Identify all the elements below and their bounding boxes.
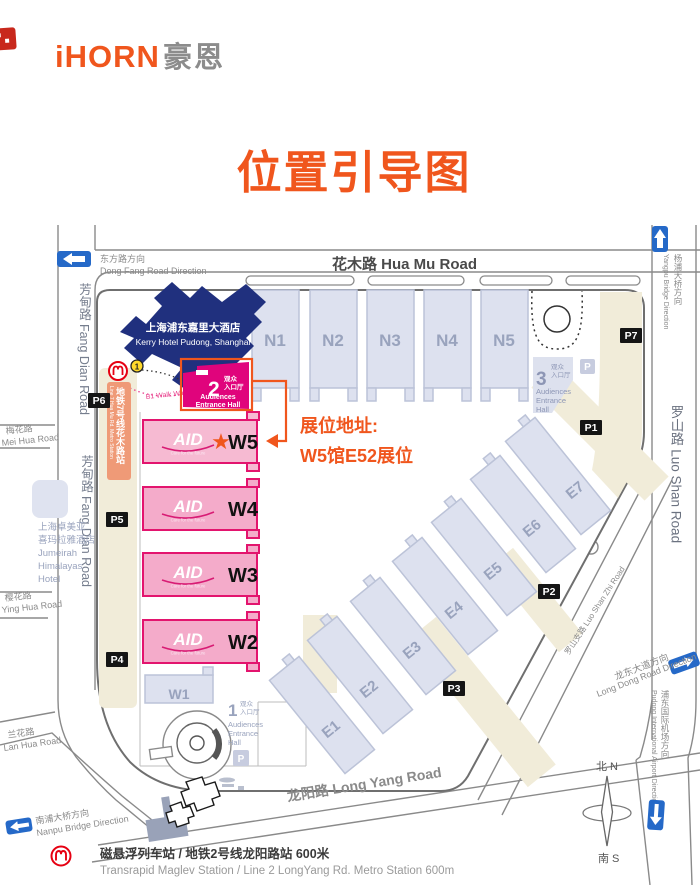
- parking-badge-p2: P2: [543, 586, 556, 598]
- dongfang-en: Dong Fang Road Direction: [100, 266, 207, 276]
- hall-label-w3: W3: [228, 565, 258, 587]
- compass-north-label: 北 N: [596, 760, 618, 773]
- entrance3-parking-p: P: [584, 362, 591, 373]
- jumeirah-line4: Himalayas: [38, 561, 83, 572]
- metro-line7-label-zh: 地铁7号线花木路站: [115, 386, 126, 465]
- brand-logo-en: iHORN: [55, 39, 160, 74]
- footer-station-zh: 磁悬浮列车站 / 地铁2号线龙阳路站 600米: [99, 846, 330, 861]
- direction-yangpu: 杨浦大桥方向 Yangpu Bridge Direction: [652, 226, 683, 329]
- airport-zh: 浦东国际机场方向: [660, 689, 670, 758]
- entrance2-zh2: 入口厅: [223, 383, 244, 391]
- road-label-meihua: 梅花路 Mei Hua Road: [1, 422, 59, 448]
- parking-badge-p6: P6: [93, 395, 106, 407]
- halls-north: N1 N2 N3 N4 N5: [252, 290, 528, 401]
- entrance3-en3: Hall: [536, 405, 549, 414]
- entrance1-number: 1: [228, 701, 237, 720]
- entrance3-en1: Audiences: [536, 387, 571, 396]
- venue-map: iHORN 豪恩 位置引导图: [0, 0, 700, 885]
- compass-needle: [602, 776, 613, 846]
- booth-address-value: W5馆E52展位: [300, 445, 413, 466]
- yangpu-en: Yangpu Bridge Direction: [662, 254, 669, 329]
- hall-label-n3: N3: [379, 331, 401, 350]
- entrance2-en2: Entrance Hall: [196, 402, 241, 409]
- entrance2-en1: Audiences: [200, 394, 236, 401]
- jumeirah-building: [32, 480, 68, 518]
- hall-label-n4: N4: [436, 331, 458, 350]
- yinghua-zh: 樱花路: [4, 589, 32, 603]
- hall-label-w2: W2: [228, 632, 258, 654]
- entrance3-zh2: 入口厅: [551, 371, 571, 379]
- entrance1-parking-p: P: [238, 754, 245, 765]
- hall-label-w4: W4: [228, 499, 259, 521]
- jumeirah-line5: Hotel: [38, 574, 60, 585]
- jumeirah-line3: Jumeirah: [38, 548, 77, 559]
- aid-logo-tagline: Care for the future: [171, 651, 206, 656]
- aid-logo-text: AID: [172, 630, 202, 649]
- aid-logo-text: AID: [172, 430, 202, 449]
- brand-logo-zh: 豪恩: [163, 40, 225, 74]
- booth-star-icon: ★: [211, 429, 231, 454]
- footer-transit-note: 磁悬浮列车站 / 地铁2号线龙阳路站 600米 Transrapid Magle…: [52, 846, 455, 877]
- parking-badge-p7: P7: [625, 330, 638, 342]
- road-label-fangdian-north: 芳甸路 Fang Dian Road: [77, 283, 91, 415]
- aid-logo-tagline: Care for the future: [171, 518, 206, 523]
- page-title: 位置引导图: [236, 147, 471, 198]
- metro-logo-icon: [52, 847, 71, 866]
- hall-label-n1: N1: [264, 331, 286, 350]
- hall-label-n5: N5: [493, 331, 515, 350]
- road-label-huamu: 花木路 Hua Mu Road: [332, 255, 477, 273]
- direction-dongfang: 东方路方向 Dong Fang Road Direction: [57, 251, 207, 276]
- road-canopies: [246, 276, 640, 285]
- meihua-zh: 梅花路: [5, 422, 33, 436]
- entrance3-en2: Entrance: [536, 396, 566, 405]
- kerry-hotel-label-en: Kerry Hotel Pudong, Shanghai: [136, 337, 251, 347]
- metro-logo-icon: [109, 362, 127, 380]
- entrance3-zh1: 观众: [551, 363, 565, 371]
- compass-south-label: 南 S: [598, 852, 619, 865]
- aid-logo-text: AID: [172, 563, 202, 582]
- parking-badge-p3: P3: [448, 683, 461, 695]
- jumeirah-line2: 喜玛拉雅酒店: [38, 534, 95, 546]
- parking-badge-p5: P5: [111, 514, 124, 526]
- jumeirah-line1: 上海卓美亚: [38, 521, 86, 533]
- aid-logo-tagline: Care for the future: [171, 584, 206, 589]
- direction-longdong: 龙东大道方向 Long Dong Road Direction: [595, 651, 700, 699]
- entrance1-zh1: 观众: [240, 700, 254, 708]
- compass: 北 N 南 S: [583, 760, 631, 865]
- airport-en: Pudong International Airport Direction: [650, 690, 657, 806]
- aid-logo-tagline: Care for the future: [171, 451, 206, 456]
- entrance1-en1: Audiences: [228, 720, 263, 729]
- entrance1-en3: Hall: [228, 738, 241, 747]
- kerry-hotel-label-zh: 上海浦东嘉里大酒店: [146, 321, 241, 334]
- hall-label-w5: W5: [228, 432, 258, 454]
- longdong-en: Long Dong Road Direction: [595, 652, 698, 699]
- parking-badge-p1: P1: [585, 422, 598, 434]
- dongfang-zh: 东方路方向: [100, 253, 145, 264]
- parking-badge-p4: P4: [111, 654, 124, 666]
- footer-station-en: Transrapid Maglev Station / Line 2 LongY…: [100, 865, 454, 877]
- aid-logo-text: AID: [172, 497, 202, 516]
- hall-label-n2: N2: [322, 331, 344, 350]
- road-label-luoshan: 罗山路 Luo Shan Road: [669, 405, 685, 543]
- booth-address-heading: 展位地址:: [300, 415, 378, 436]
- entrance2-zh1: 观众: [224, 374, 238, 383]
- hall-label-w1: W1: [169, 686, 190, 702]
- entrance1-zh2: 入口厅: [240, 708, 260, 716]
- direction-nanpu: 南浦大桥方向 Nanpu Bridge Direction: [5, 807, 129, 838]
- metro-exit-badge-number: 1: [135, 363, 140, 372]
- road-label-yinghua: 樱花路 Ying Hua Road: [1, 589, 62, 615]
- entrance1-en2: Entrance: [228, 729, 258, 738]
- road-label-lanhua: 兰花路 Lan Hua Road: [3, 725, 62, 753]
- yangpu-zh: 杨浦大桥方向: [673, 253, 683, 305]
